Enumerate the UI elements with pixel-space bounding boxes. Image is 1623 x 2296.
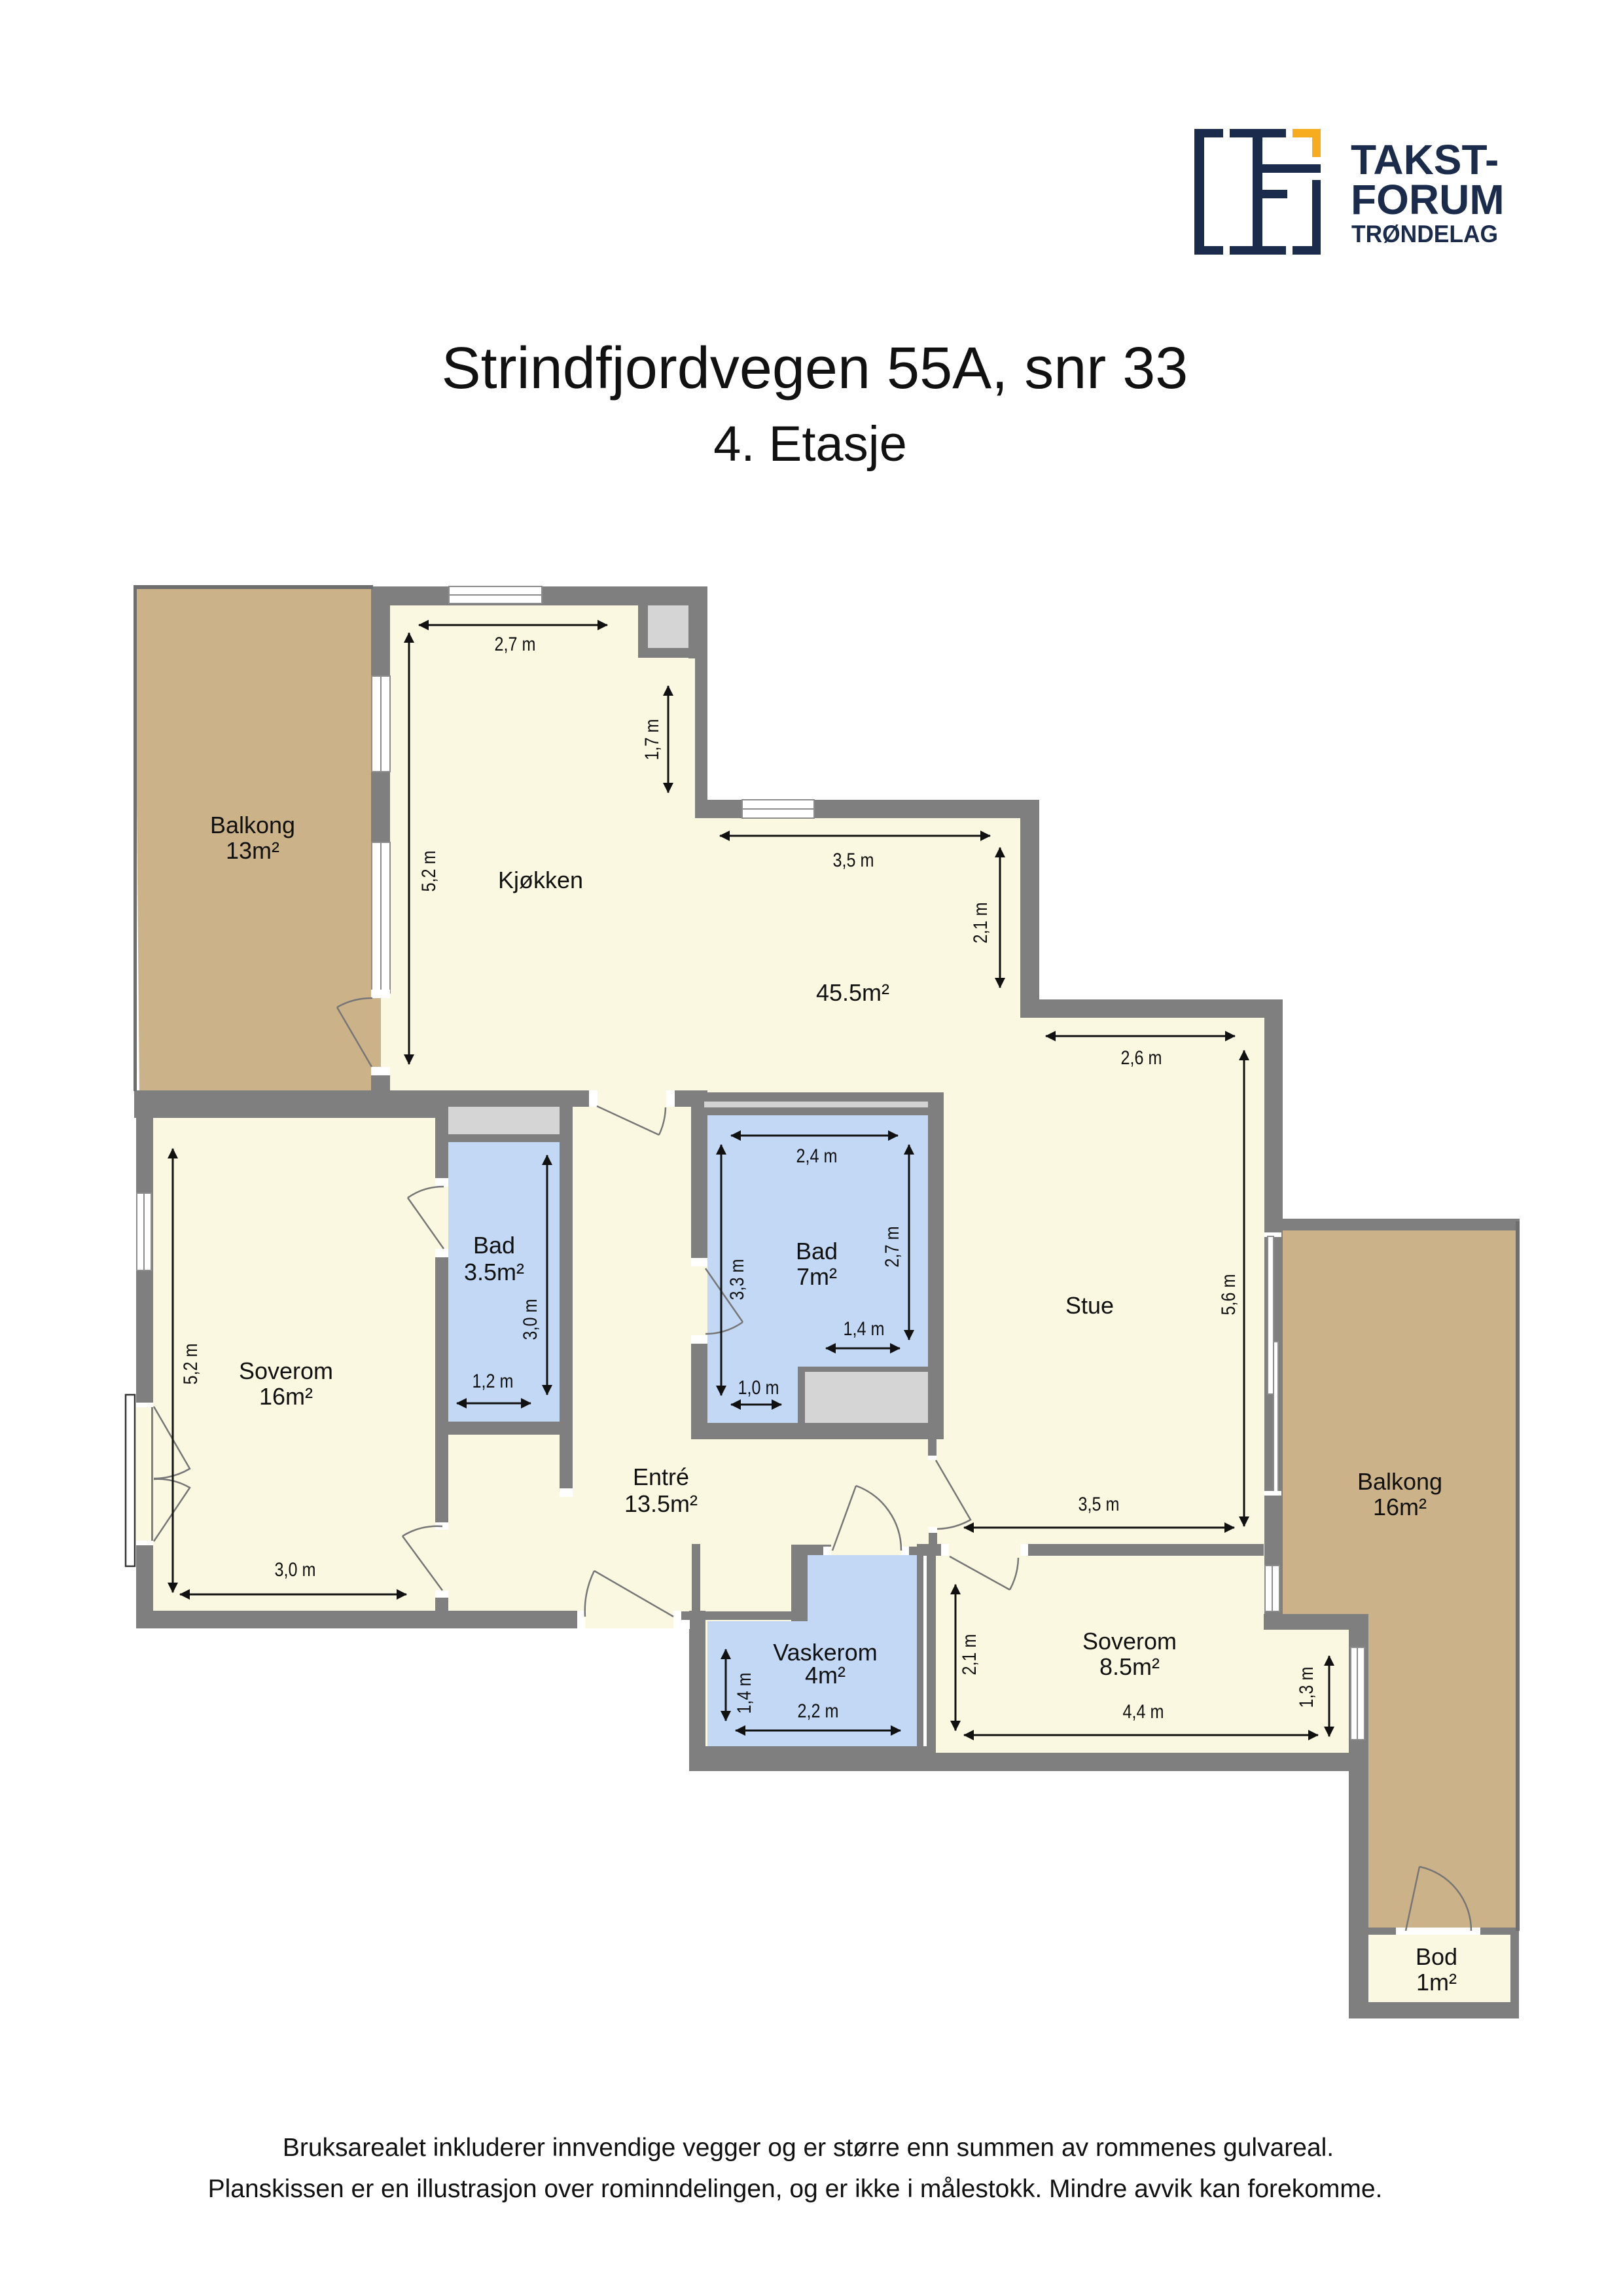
svg-text:Bad: Bad (473, 1232, 515, 1259)
svg-text:Bruksarealet inkluderer innven: Bruksarealet inkluderer innvendige vegge… (283, 2134, 1334, 2162)
svg-text:Strindfjordvegen 55A, snr 33: Strindfjordvegen 55A, snr 33 (442, 336, 1188, 401)
svg-text:2,1 m: 2,1 m (970, 903, 991, 944)
svg-text:2,4 m: 2,4 m (796, 1145, 838, 1167)
svg-text:45.5m²: 45.5m² (816, 979, 889, 1006)
svg-text:Entré: Entré (633, 1463, 689, 1490)
svg-text:2,2 m: 2,2 m (798, 1700, 839, 1722)
svg-text:13m²: 13m² (226, 837, 279, 864)
svg-text:Bad: Bad (796, 1238, 838, 1265)
svg-text:3,0 m: 3,0 m (520, 1299, 541, 1340)
svg-text:3,5 m: 3,5 m (1079, 1494, 1120, 1515)
svg-text:7m²: 7m² (796, 1263, 837, 1290)
svg-text:13.5m²: 13.5m² (624, 1490, 698, 1517)
svg-text:1,2 m: 1,2 m (473, 1371, 514, 1392)
svg-text:FORUM: FORUM (1351, 176, 1505, 223)
svg-text:Bod: Bod (1416, 1943, 1457, 1970)
svg-text:1,4 m: 1,4 m (844, 1318, 885, 1340)
svg-text:1,0 m: 1,0 m (738, 1377, 779, 1399)
svg-text:1m²: 1m² (1416, 1969, 1457, 1996)
svg-text:16m²: 16m² (1373, 1494, 1427, 1520)
svg-text:Balkong: Balkong (210, 812, 295, 838)
svg-text:3,5 m: 3,5 m (833, 850, 874, 871)
svg-text:2,6 m: 2,6 m (1121, 1047, 1162, 1069)
svg-text:1,4 m: 1,4 m (734, 1673, 755, 1714)
svg-text:2,7 m: 2,7 m (882, 1227, 903, 1268)
svg-text:Balkong: Balkong (1357, 1468, 1442, 1495)
svg-text:TRØNDELAG: TRØNDELAG (1351, 221, 1498, 247)
svg-text:5,6 m: 5,6 m (1218, 1274, 1240, 1316)
svg-text:Kjøkken: Kjøkken (498, 867, 583, 893)
svg-text:8.5m²: 8.5m² (1099, 1653, 1160, 1680)
svg-text:3,3 m: 3,3 m (726, 1259, 748, 1300)
svg-text:4. Etasje: 4. Etasje (713, 416, 907, 472)
svg-text:16m²: 16m² (259, 1383, 313, 1410)
svg-text:1,7 m: 1,7 m (641, 719, 663, 761)
svg-text:3,0 m: 3,0 m (275, 1559, 316, 1581)
svg-text:Planskissen er en illustrasjon: Planskissen er en illustrasjon over romi… (208, 2175, 1383, 2203)
svg-text:5,2 m: 5,2 m (418, 851, 440, 892)
svg-text:4,4 m: 4,4 m (1123, 1701, 1164, 1723)
svg-text:1,3 m: 1,3 m (1296, 1667, 1317, 1708)
svg-text:2,7 m: 2,7 m (495, 634, 536, 655)
svg-text:3.5m²: 3.5m² (464, 1259, 524, 1285)
svg-text:Soverom: Soverom (239, 1357, 333, 1384)
svg-text:5,2 m: 5,2 m (180, 1344, 202, 1385)
svg-text:2,1 m: 2,1 m (959, 1634, 980, 1676)
svg-text:4m²: 4m² (805, 1662, 846, 1689)
svg-text:Stue: Stue (1065, 1292, 1114, 1319)
svg-text:Soverom: Soverom (1082, 1628, 1177, 1655)
